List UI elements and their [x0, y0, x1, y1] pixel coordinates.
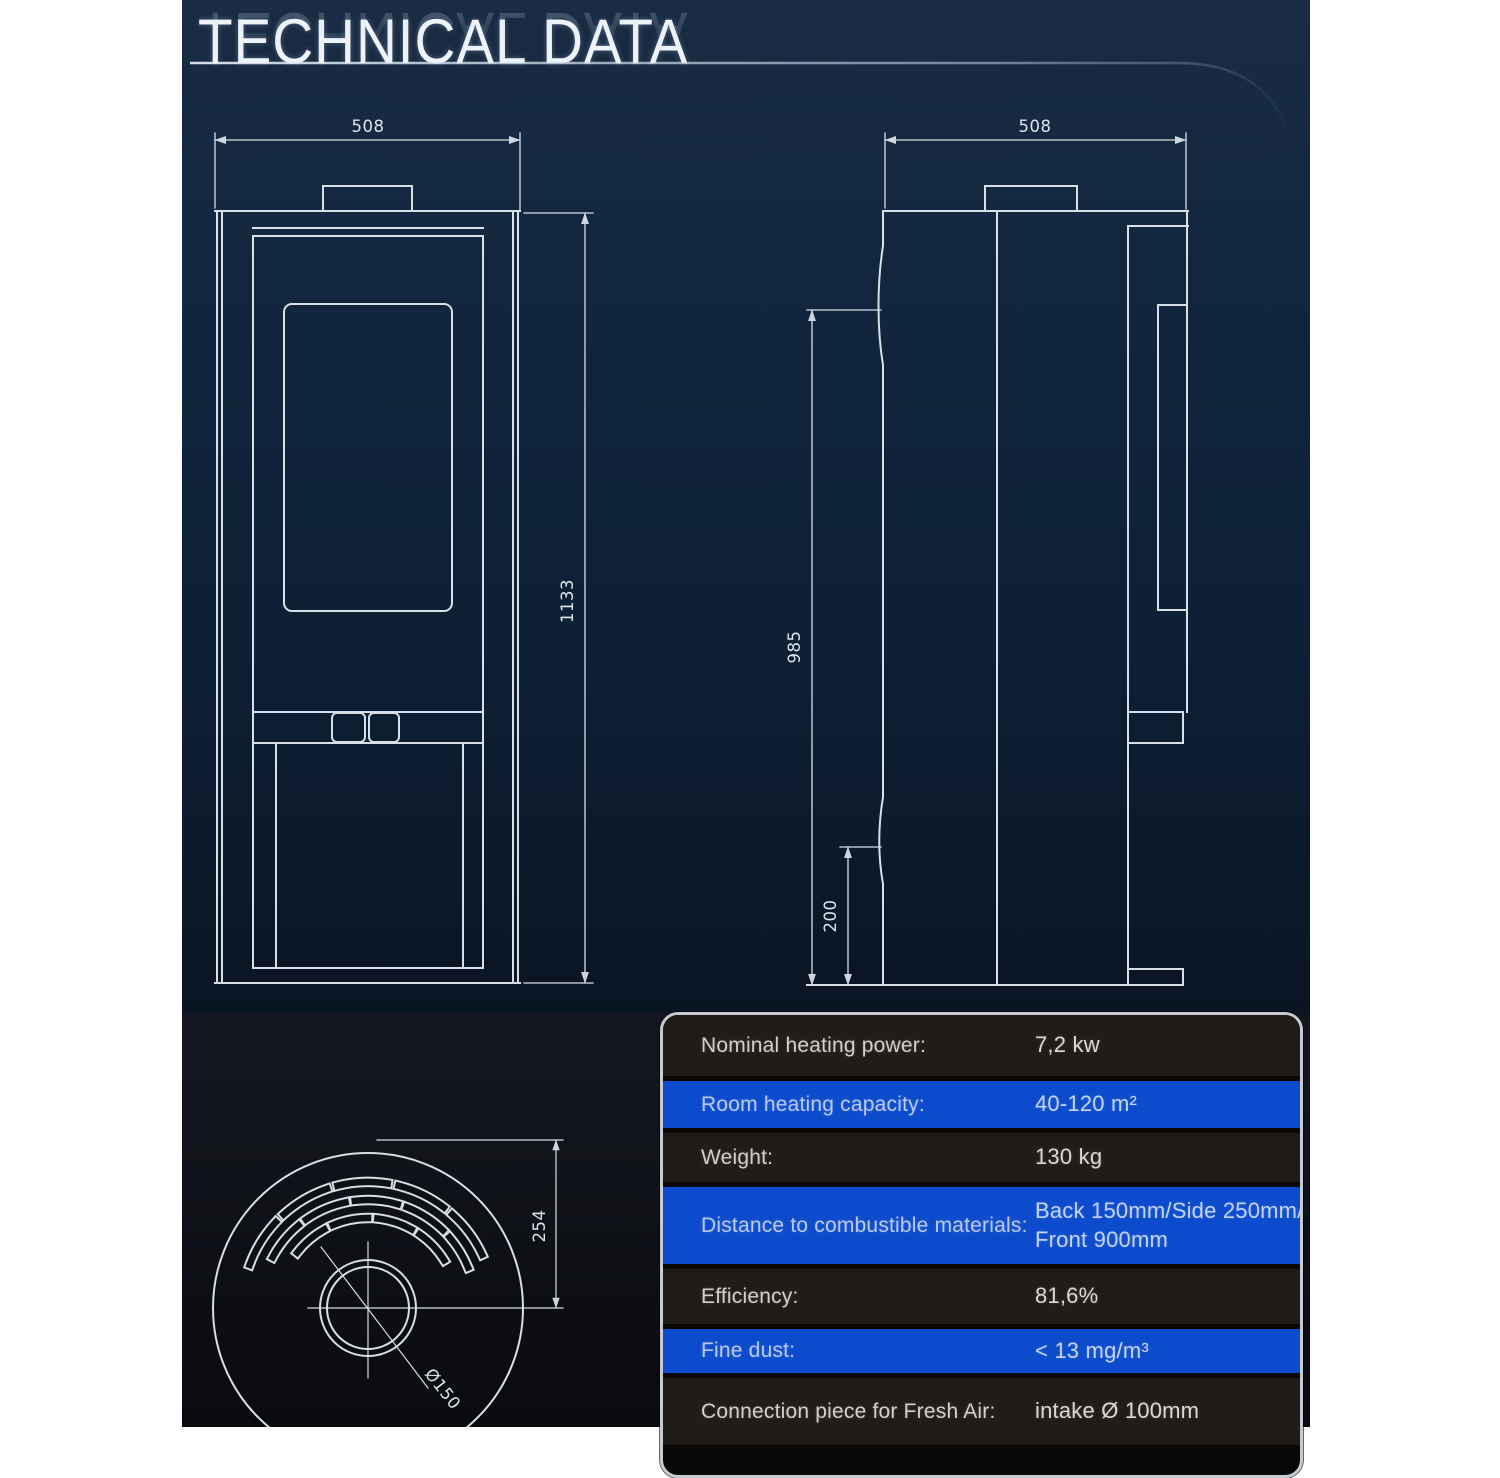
front-width-dim-label: 508: [352, 117, 385, 136]
side-outlet-dim-label: 200: [821, 900, 840, 933]
row-label: Nominal heating power:: [663, 1034, 926, 1058]
row-value: 40-120 m²: [1035, 1090, 1137, 1119]
row-value: 81,6%: [1035, 1282, 1098, 1311]
table-row: Efficiency: 81,6%: [663, 1264, 1300, 1324]
row-label: Fine dust:: [663, 1339, 795, 1363]
top-view-drawing: [213, 1140, 563, 1427]
front-view-drawing: [215, 133, 593, 983]
table-row: Room heating capacity: 40-120 m²: [663, 1076, 1300, 1128]
side-view-drawing: [807, 133, 1188, 985]
row-value: intake Ø 100mm: [1035, 1397, 1199, 1426]
front-height-dim-label: 1133: [558, 579, 577, 623]
table-row: Nominal heating power: 7,2 kw: [663, 1015, 1300, 1076]
row-label: Weight:: [663, 1146, 773, 1170]
row-value-line2: Front 900mm: [1035, 1226, 1303, 1255]
top-flue-dim-label: Ø150: [421, 1365, 465, 1413]
row-value: < 13 mg/m³: [1035, 1337, 1149, 1366]
table-row: Distance to combustible materials: Back …: [663, 1182, 1300, 1264]
row-label: Distance to combustible materials:: [663, 1214, 1028, 1238]
row-value: 130 kg: [1035, 1143, 1102, 1172]
row-value: 7,2 kw: [1035, 1031, 1100, 1060]
side-height-dim-label: 985: [785, 631, 804, 664]
row-value-line1: Back 150mm/Side 250mm/: [1035, 1197, 1303, 1226]
row-label: Connection piece for Fresh Air:: [663, 1400, 996, 1424]
table-row: Connection piece for Fresh Air: intake Ø…: [663, 1373, 1300, 1445]
side-depth-dim-label: 508: [1019, 117, 1052, 136]
vent-slots: [250, 1182, 483, 1268]
row-label: Efficiency:: [663, 1285, 799, 1309]
row-label: Room heating capacity:: [663, 1093, 925, 1117]
top-radius-dim-label: 254: [530, 1210, 549, 1243]
table-row: Fine dust: < 13 mg/m³: [663, 1324, 1300, 1373]
row-value: Back 150mm/Side 250mm/ Front 900mm: [1035, 1197, 1303, 1254]
spec-table: Nominal heating power: 7,2 kw Room heati…: [660, 1012, 1303, 1478]
table-row: Weight: 130 kg: [663, 1128, 1300, 1182]
